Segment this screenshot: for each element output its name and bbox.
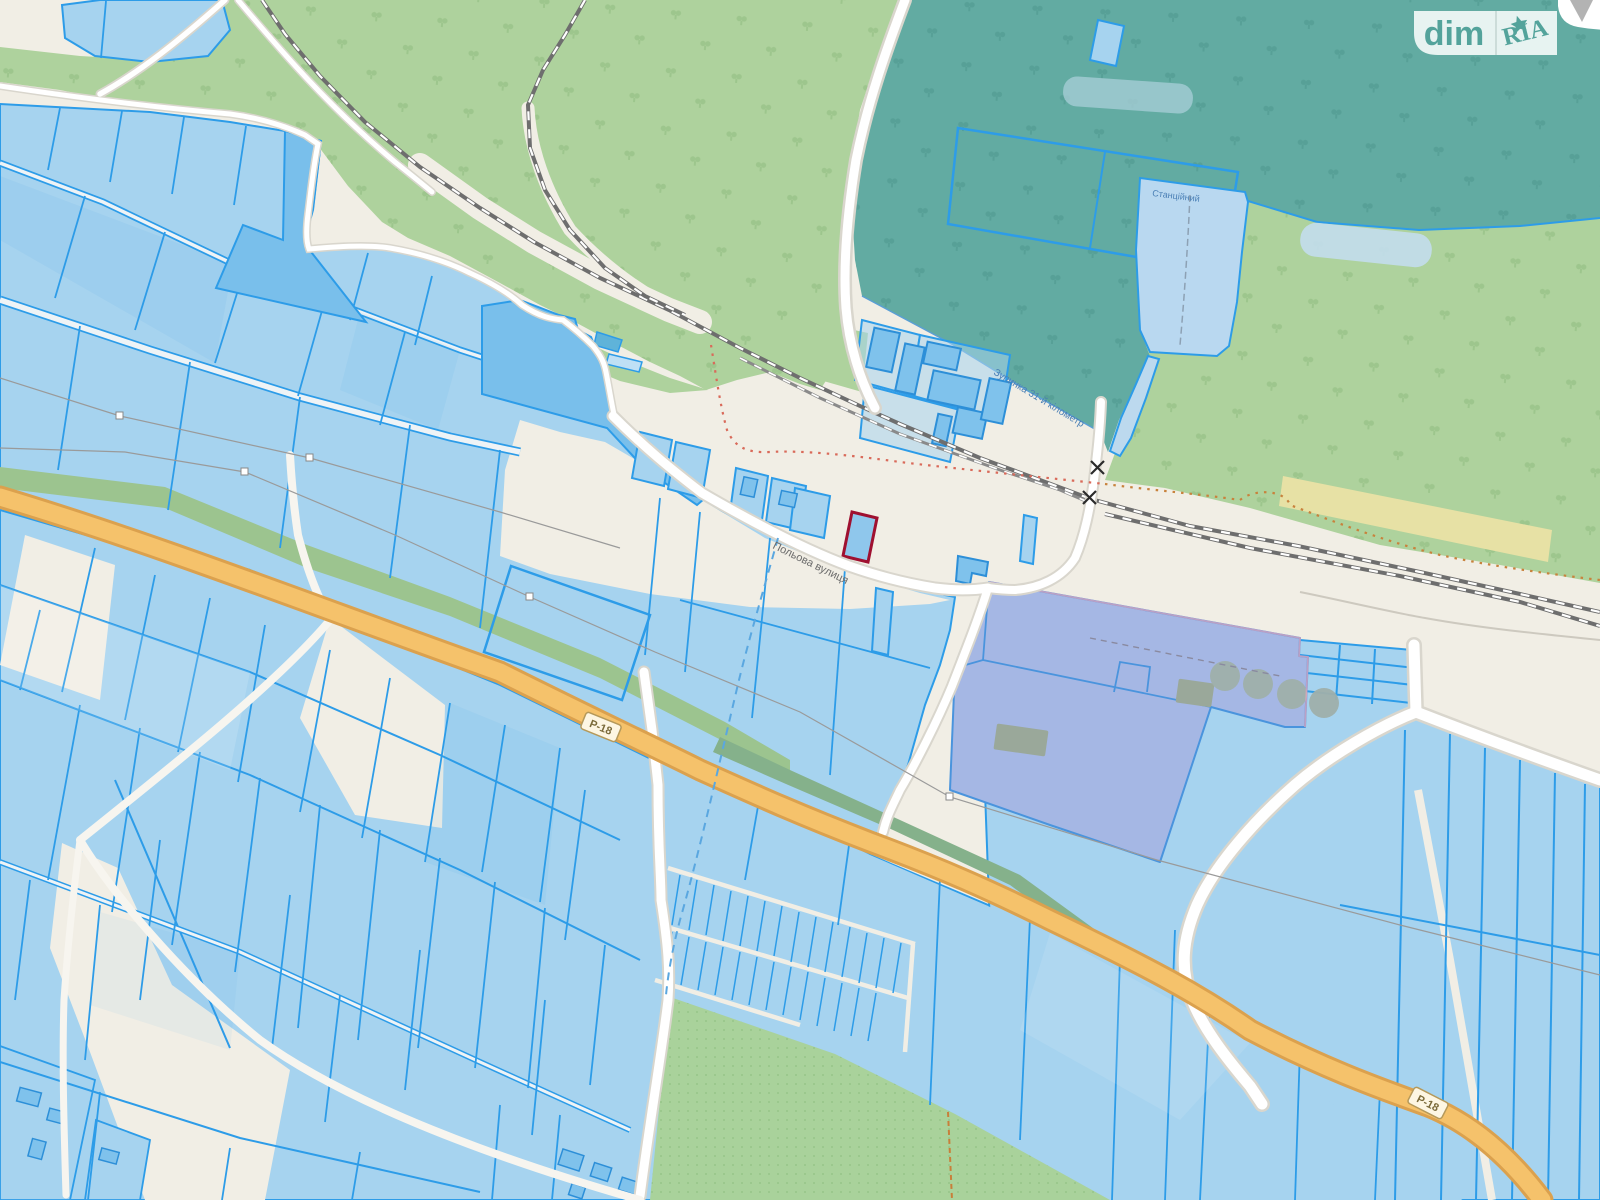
svg-text:dim: dim [1424,15,1484,53]
